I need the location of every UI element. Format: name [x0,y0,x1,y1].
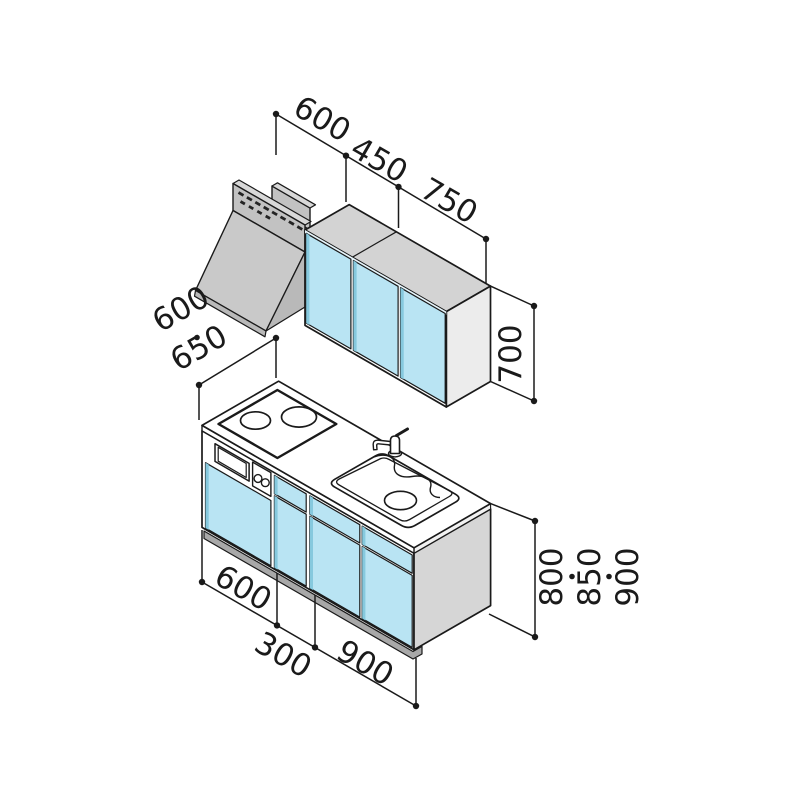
dimension-dot [199,579,205,585]
dimension-wall-cabinet-height: 700 [491,286,538,404]
kitchen-dimension-diagram: 600 450 750 600 650 700 600 300 900 [0,0,800,800]
dim-label-mid-300: 300 [248,625,317,686]
dimension-dot [413,703,419,709]
dimension-dot [483,236,489,242]
dim-label-wall-cab-750: 750 [414,171,483,232]
dimension-dot [531,303,537,309]
dim-label-height-800: 800 [534,547,570,606]
dimension-dot [312,644,318,650]
dim-label-wall-height-700: 700 [493,324,529,383]
dim-label-wall-cab-450: 450 [344,130,413,191]
faucet-body [391,436,400,454]
faucet-lever [397,429,408,436]
base-cabinet [202,381,491,659]
range-hood [195,180,316,337]
dimension-dot [274,622,280,628]
isometric-kitchen-drawing: 600 450 750 600 650 700 600 300 900 [0,0,800,800]
dimension-counter-heights: 800 850 900 [489,504,646,641]
dimension-dot [532,634,538,640]
sink-drain [385,491,417,509]
control-knob-1 [254,475,262,483]
control-knob-2 [261,479,269,487]
wall-cabinet [305,205,491,407]
dimension-dot [532,518,538,524]
dimension-dot [273,111,279,117]
dimension-dot [273,335,279,341]
dimension-dot [531,398,537,404]
dimension-dot [196,382,202,388]
dim-label-height-850: 850 [572,547,608,606]
dim-label-height-900: 900 [610,547,646,606]
